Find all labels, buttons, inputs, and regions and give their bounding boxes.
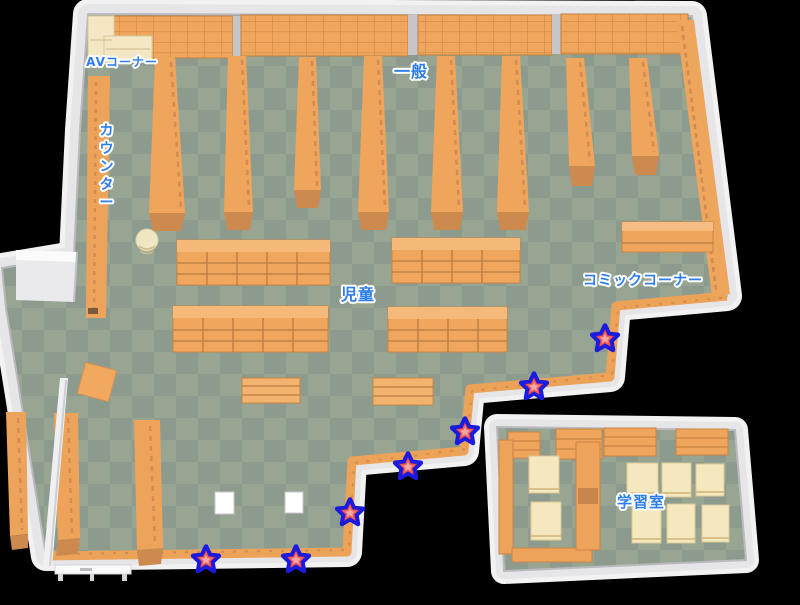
low-shelf [388,307,507,352]
low-shelf [173,306,328,352]
low-bench [373,378,433,405]
shelf-base [10,534,28,550]
top-wall-shelves [112,14,688,58]
shelf-base [137,548,163,566]
shelf-base [431,212,463,230]
area-label-general: 一般 [394,62,428,81]
counter-end [88,308,98,314]
shelf-block [418,15,552,55]
low-bench [242,378,300,403]
kiosk-top [136,229,158,251]
shelf-base [497,212,529,230]
wall-pillar [408,15,418,55]
low-shelf [392,238,520,283]
area-label-comic-corner: コミックコーナー [583,273,703,289]
shelf-base [56,538,80,556]
comic-corner-shelf [622,222,713,252]
library-floor-map: AVコーナー 一般 カウンター 児童 コミックコーナー 学習室 [0,0,800,600]
shelf-block [241,15,408,56]
area-label-children: 児童 [340,285,375,304]
white-box [285,492,303,513]
shelf-base [569,166,595,186]
shelf-base [224,212,253,230]
shelf-base [294,190,321,208]
west-wall-block [16,250,77,302]
shelf-block [561,14,688,54]
white-box [215,492,234,514]
wall-pillar [233,16,241,58]
shelf-aisle [134,420,163,550]
map-canvas: AVコーナー 一般 カウンター 児童 コミックコーナー 学習室 [0,0,800,600]
shelf-base [632,156,659,175]
area-label-counter: カウンター [100,123,115,211]
area-label-study-room: 学習室 [617,493,665,511]
wall-pillar [552,14,561,54]
area-label-av-corner: AVコーナー [86,55,158,69]
shelf-base [358,212,389,230]
low-shelf [177,240,330,285]
shelf-base [149,213,185,231]
